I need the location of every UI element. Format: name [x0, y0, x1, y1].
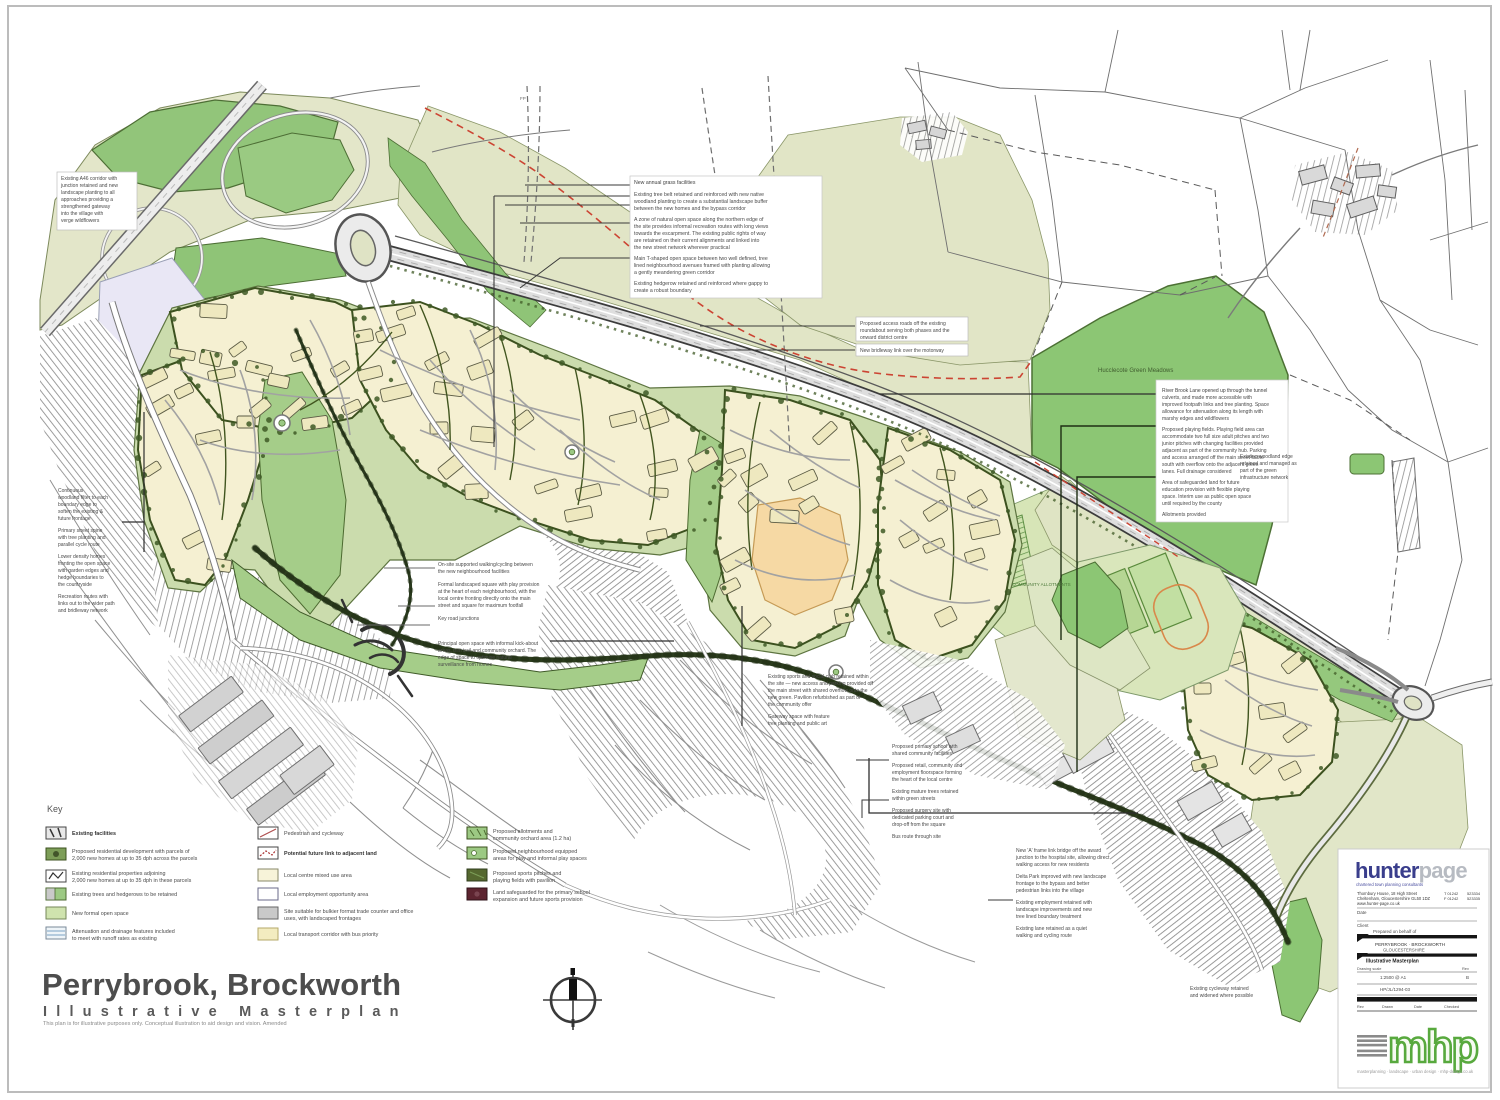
svg-text:hedge boundaries to: hedge boundaries to [58, 575, 104, 581]
svg-text:the countryside: the countryside [58, 582, 92, 588]
svg-text:tree planting and public art: tree planting and public art [768, 721, 828, 727]
svg-text:within green streets: within green streets [892, 796, 936, 802]
svg-text:Bus route through site: Bus route through site [892, 834, 941, 840]
svg-text:chartered town planning consul: chartered town planning consultants [1356, 882, 1423, 887]
svg-text:Recreation routes with: Recreation routes with [58, 594, 108, 600]
svg-text:Existing mature trees retained: Existing mature trees retained [892, 789, 959, 795]
svg-text:landscape planting to all: landscape planting to all [61, 190, 115, 196]
svg-text:create a robust boundary: create a robust boundary [634, 288, 692, 294]
svg-text:community orchard area (1.2 ha: community orchard area (1.2 ha) [493, 836, 571, 842]
svg-text:On-site supported walking/cycl: On-site supported walking/cycling betwee… [438, 562, 533, 568]
svg-text:woodland filter to each: woodland filter to each [58, 495, 108, 501]
svg-text:expansion and future sports pr: expansion and future sports provision [493, 897, 583, 903]
svg-text:Gateway space with feature: Gateway space with feature [768, 714, 830, 720]
svg-text:Local employment opportunity a: Local employment opportunity area [284, 892, 368, 898]
svg-text:strengthened gateway: strengthened gateway [61, 204, 111, 210]
svg-text:Checked: Checked [1444, 1005, 1459, 1009]
svg-text:Delta Park improved with new l: Delta Park improved with new landscape [1016, 874, 1107, 880]
svg-text:the new neighbourhood faciliti: the new neighbourhood facilities [438, 569, 510, 575]
svg-text:onward district centre: onward district centre [860, 335, 908, 341]
svg-text:pedestrian links into the vill: pedestrian links into the village [1016, 888, 1084, 894]
svg-text:Proposed primary school with: Proposed primary school with [892, 744, 958, 750]
svg-text:Proposed playing fields. Playi: Proposed playing fields. Playing field a… [1162, 427, 1265, 433]
svg-text:This plan is for illustrative: This plan is for illustrative purposes o… [43, 1021, 287, 1027]
svg-text:the community offer: the community offer [768, 702, 812, 708]
svg-text:culverts, and made more access: culverts, and made more accessible with [1162, 395, 1252, 401]
svg-text:Proposed neighbourhood equippe: Proposed neighbourhood equipped [493, 849, 577, 855]
svg-text:New bridleway link over the mo: New bridleway link over the motorway [860, 348, 944, 354]
svg-text:woodland planting to create a: woodland planting to create a substantia… [634, 199, 768, 205]
svg-text:drop-off from the square: drop-off from the square [892, 822, 946, 828]
svg-text:allowance for attenuation alon: allowance for attenuation along its leng… [1162, 409, 1263, 415]
svg-text:Proposed allotments and: Proposed allotments and [493, 829, 553, 835]
svg-text:the main street with shared ov: the main street with shared overflow ont… [768, 688, 868, 694]
svg-text:GLOUCESTERSHIRE: GLOUCESTERSHIRE [1383, 948, 1425, 953]
svg-text:edge of space to optimise natu: edge of space to optimise natural [438, 655, 512, 661]
svg-text:Date: Date [1414, 1005, 1422, 1009]
svg-text:with garden edges and: with garden edges and [58, 568, 109, 574]
svg-text:walking and cycling route: walking and cycling route [1016, 933, 1072, 939]
svg-text:Allotments provided: Allotments provided [1162, 512, 1206, 518]
svg-text:lanes. Full drainage considere: lanes. Full drainage considered [1162, 469, 1232, 475]
svg-text:future frontage: future frontage [58, 516, 91, 522]
svg-text:shared community facilities: shared community facilities [892, 751, 953, 757]
svg-text:fronting the open space: fronting the open space [58, 561, 110, 567]
svg-text:Illustrative Masterplan: Illustrative Masterplan [43, 1004, 408, 1020]
svg-text:verge wildflowers: verge wildflowers [61, 218, 100, 224]
svg-text:new green. Pavilion refurbishe: new green. Pavilion refurbished as part … [768, 695, 861, 701]
svg-text:Existing facilities: Existing facilities [72, 831, 116, 837]
svg-text:and widened where possible: and widened where possible [1190, 993, 1253, 999]
svg-text:Proposed sports pitches and: Proposed sports pitches and [493, 871, 561, 877]
svg-text:the site — new access and park: the site — new access and parking provid… [768, 681, 874, 687]
svg-text:uses, with landscaped frontage: uses, with landscaped frontages [284, 916, 361, 922]
svg-text:New formal open space: New formal open space [72, 911, 129, 917]
svg-text:Main T-shaped open space betwe: Main T-shaped open space between two wel… [634, 256, 768, 262]
svg-text:1:2500 @ A1: 1:2500 @ A1 [1380, 975, 1407, 980]
svg-text:Principal open space with info: Principal open space with informal kick-… [438, 641, 539, 647]
svg-text:mhp: mhp [1388, 1021, 1478, 1072]
svg-text:parallel cycle route: parallel cycle route [58, 542, 100, 548]
svg-text:Site suitable for bulkier form: Site suitable for bulkier format trade c… [284, 909, 413, 915]
svg-text:local centre fronting directly: local centre fronting directly onto the … [438, 596, 531, 602]
svg-text:River Brook Lane opened up thr: River Brook Lane opened up through the t… [1162, 388, 1267, 394]
svg-text:marshy edges and wildflowers: marshy edges and wildflowers [1162, 416, 1229, 422]
svg-text:Potential future link to adjac: Potential future link to adjacent land [284, 851, 377, 857]
svg-text:2,000 new homes at up to 35 dp: 2,000 new homes at up to 35 dph across t… [72, 856, 198, 862]
svg-text:Key: Key [47, 804, 63, 814]
svg-text:Existing lane retained as a qu: Existing lane retained as a quiet [1016, 926, 1087, 932]
svg-text:approaches providing a: approaches providing a [61, 197, 113, 203]
svg-text:the site provides informal rec: the site provides informal recreation ro… [634, 224, 769, 230]
svg-text:to meet with runoff rates as e: to meet with runoff rates as existing [72, 936, 157, 942]
svg-text:until required by the county: until required by the county [1162, 501, 1223, 507]
svg-text:www.hunter-page.co.uk: www.hunter-page.co.uk [1357, 901, 1401, 906]
svg-text:Continuous: Continuous [58, 488, 84, 494]
svg-text:into the village with: into the village with [61, 211, 103, 217]
svg-text:A zone of natural open space a: A zone of natural open space along the n… [634, 217, 764, 223]
svg-text:Drawing scale: Drawing scale [1357, 966, 1381, 971]
svg-text:Perrybrook, Brockworth: Perrybrook, Brockworth [42, 967, 401, 1002]
svg-text:playing fields with pavilion: playing fields with pavilion [493, 878, 555, 884]
svg-text:areas for play and informal pl: areas for play and informal play spaces [493, 856, 587, 862]
svg-text:the heart of the local centre: the heart of the local centre [892, 777, 953, 783]
svg-text:Proposed residential developme: Proposed residential development with pa… [72, 849, 190, 855]
svg-text:Existing cycleway retained: Existing cycleway retained [1190, 986, 1249, 992]
svg-text:soften the existing &: soften the existing & [58, 509, 104, 515]
svg-text:retained and managed as: retained and managed as [1240, 461, 1297, 467]
svg-text:part of the green: part of the green [1240, 468, 1277, 474]
svg-text:Formal landscaped square with: Formal landscaped square with play provi… [438, 582, 540, 588]
svg-text:dedicated parking court and: dedicated parking court and [892, 815, 954, 821]
svg-text:surveillance from homes: surveillance from homes [438, 662, 493, 668]
svg-text:Pedestrian and cycleway: Pedestrian and cycleway [284, 831, 344, 837]
svg-text:the new street network whereve: the new street network wherever practica… [634, 245, 730, 251]
svg-text:masterplanning · landscape · u: masterplanning · landscape · urban desig… [1357, 1069, 1474, 1074]
svg-text:Proposed access roads off the: Proposed access roads off the existing [860, 321, 946, 327]
svg-text:Existing hedgerow retained and: Existing hedgerow retained and reinforce… [634, 281, 768, 287]
svg-text:Existing woodland edge: Existing woodland edge [1240, 454, 1293, 460]
svg-text:523335: 523335 [1467, 896, 1480, 901]
svg-text:walking access for new residen: walking access for new residents [1016, 862, 1090, 868]
svg-text:are retained on their current: are retained on their current alignments… [634, 238, 760, 244]
svg-text:Existing trees and hedgerows t: Existing trees and hedgerows to be retai… [72, 892, 177, 898]
svg-text:Attenuation and drainage featu: Attenuation and drainage features includ… [72, 929, 175, 935]
svg-text:B: B [1466, 975, 1469, 980]
svg-text:towards the escarpment. The ex: towards the escarpment. The existing pub… [634, 231, 766, 237]
svg-text:Drawn: Drawn [1382, 1005, 1393, 1009]
svg-text:links out to the wider path: links out to the wider path [58, 601, 115, 607]
svg-text:Primary street spine: Primary street spine [58, 528, 103, 534]
svg-text:2,000 new homes at up to 35 dp: 2,000 new homes at up to 35 dph in these… [72, 878, 192, 884]
svg-text:Existing employment retained w: Existing employment retained with [1016, 900, 1092, 906]
svg-text:street and square for maximum: street and square for maximum footfall [438, 603, 523, 609]
svg-text:junction retained and new: junction retained and new [60, 183, 118, 189]
svg-text:Local transport corridor with: Local transport corridor with bus priori… [284, 932, 379, 938]
svg-text:Client: Client [1357, 923, 1369, 928]
svg-text:education provision with flexi: education provision with flexible playin… [1162, 487, 1250, 493]
svg-text:junction to the hospital site,: junction to the hospital site, allowing … [1015, 855, 1110, 861]
svg-text:FP: FP [520, 96, 526, 101]
svg-text:space. Interim use as public o: space. Interim use as public open space [1162, 494, 1251, 500]
svg-text:roundabout serving both phases: roundabout serving both phases and the [860, 328, 950, 334]
svg-text:HP/JL/1294-03: HP/JL/1294-03 [1380, 987, 1411, 992]
svg-text:hunterpage: hunterpage [1355, 858, 1467, 883]
svg-text:accommodate two full size adul: accommodate two full size adult pitches … [1162, 434, 1269, 440]
svg-text:Existing A46 corridor with: Existing A46 corridor with [61, 176, 117, 182]
svg-text:New annual grass facilities: New annual grass facilities [634, 180, 696, 186]
svg-text:New 'A' frame link bridge off: New 'A' frame link bridge off the award [1016, 848, 1101, 854]
svg-text:Hucclecote Green Meadows: Hucclecote Green Meadows [1098, 368, 1173, 374]
svg-text:between the new homes and the: between the new homes and the bypass cor… [634, 206, 746, 212]
svg-text:COMMUNITY ALLOTMENTS: COMMUNITY ALLOTMENTS [1012, 582, 1071, 587]
svg-text:Proposed retail, community and: Proposed retail, community and [892, 763, 963, 769]
svg-text:PERRYBROOK · BROCKWORTH: PERRYBROOK · BROCKWORTH [1375, 942, 1445, 947]
svg-text:Rev: Rev [1462, 966, 1469, 971]
svg-text:junior pitches with changing f: junior pitches with changing facilities … [1161, 441, 1263, 447]
svg-text:a gently meandering green corr: a gently meandering green corridor [634, 270, 715, 276]
svg-text:boundary edge to: boundary edge to [58, 502, 97, 508]
svg-text:Date: Date [1357, 910, 1367, 915]
svg-text:employment floorspace forming: employment floorspace forming [892, 770, 962, 776]
svg-text:Prepared on behalf of: Prepared on behalf of [1373, 929, 1417, 934]
svg-text:infrastructure network: infrastructure network [1240, 475, 1289, 481]
svg-text:Existing tree belt retained an: Existing tree belt retained and reinforc… [634, 192, 764, 198]
svg-text:Proposed surgery site with: Proposed surgery site with [892, 808, 951, 814]
svg-text:F 01242: F 01242 [1444, 896, 1458, 901]
svg-text:Existing residential propertie: Existing residential properties adjoinin… [72, 871, 166, 877]
svg-text:with tree planting and: with tree planting and [58, 535, 106, 541]
svg-text:Area of safeguarded land for f: Area of safeguarded land for future [1162, 480, 1240, 486]
svg-text:tree lined boundary treatment: tree lined boundary treatment [1016, 914, 1082, 920]
svg-text:Rev: Rev [1357, 1005, 1364, 1009]
svg-text:at the heart of each neighbour: at the heart of each neighbourhood, with… [438, 589, 536, 595]
svg-text:areas, trim trail and communit: areas, trim trail and community orchard.… [438, 648, 536, 654]
svg-text:Key road junctions: Key road junctions [438, 616, 480, 622]
svg-text:Land safeguarded for the prima: Land safeguarded for the primary school [493, 890, 590, 896]
svg-text:lined neighbourhood avenues fr: lined neighbourhood avenues framed with … [634, 263, 770, 269]
svg-text:landscape improvements and new: landscape improvements and new [1016, 907, 1092, 913]
svg-text:improved footpath links and tr: improved footpath links and tree plantin… [1162, 402, 1269, 408]
svg-text:frontage to the bypass and bet: frontage to the bypass and better [1016, 881, 1090, 887]
svg-text:Lower density homes: Lower density homes [58, 554, 106, 560]
svg-text:Illustrative Masterplan: Illustrative Masterplan [1366, 959, 1419, 965]
svg-text:Local centre mixed use area: Local centre mixed use area [284, 873, 352, 879]
svg-text:Existing sports and social clu: Existing sports and social club retained… [768, 674, 869, 680]
svg-text:and bridleway network: and bridleway network [58, 608, 108, 614]
